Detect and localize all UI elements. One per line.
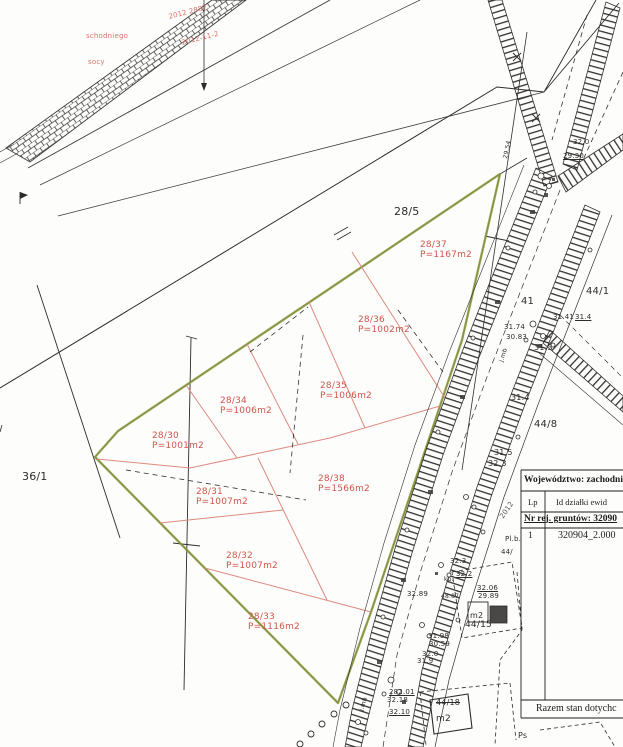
map-drawing [0,0,623,747]
cadastral-table-grid [521,470,623,718]
road-corridor [333,0,623,747]
table-row1-id: 320904_2.000 [558,530,616,541]
table-nr-rej-gruntow: Nr rej. gruntów: 32090 [524,514,617,524]
road-band-upper [488,0,558,186]
cadastral-map-page: 28/37P=1167m228/36P=1002m228/35P=1006m22… [0,0,623,747]
table-razem-row: Razem stan dotychc [536,703,617,714]
table-header-wojewodztwo: Województwo: zachodni [524,475,623,485]
table-row1-lp: 1 [528,531,533,541]
utility-pole-symbols [356,173,593,735]
tree-symbols [297,702,349,747]
road-band-se [543,330,623,412]
table-col-id-dzialki: Id działki ewid [556,497,607,507]
table-col-lp: Lp [528,497,537,507]
